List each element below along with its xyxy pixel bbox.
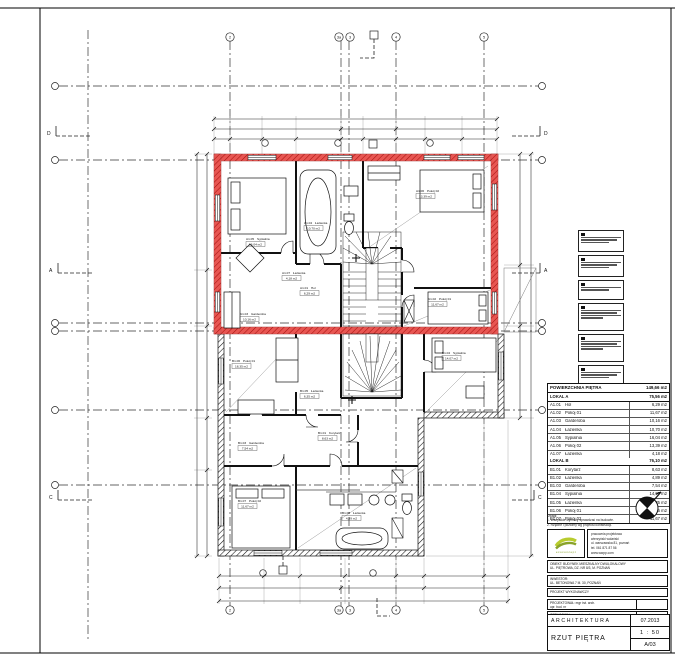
svg-text:Sypialnia: Sypialnia bbox=[257, 237, 270, 241]
company-block: ecoconcept pracownia projektowa wierzyńs… bbox=[547, 529, 668, 558]
wardrobe-top-right bbox=[368, 166, 400, 180]
svg-text:A1.05: A1.05 bbox=[246, 237, 254, 241]
svg-text:A1.02: A1.02 bbox=[428, 297, 436, 301]
legend-stack bbox=[578, 230, 624, 392]
titleblock-bottom: ARCHITEKTURA 07.2013 RZUT PIĘTRA 1 : 50 … bbox=[547, 614, 670, 651]
sink-upper bbox=[344, 186, 358, 196]
info-row-designer: PROJEKTOWAŁ: mgr inż. arch. upr. bud. nr bbox=[547, 599, 668, 610]
svg-text:B1.03: B1.03 bbox=[238, 441, 246, 445]
sink-lower-2 bbox=[348, 494, 362, 505]
lokal-a-rows: A1.01 Hol 6,29 m2 A1.02 Pokój 01 11,67 m… bbox=[548, 402, 669, 458]
svg-text:18,35 m2: 18,35 m2 bbox=[235, 365, 248, 369]
table-total: 149,66 m2 bbox=[646, 386, 667, 390]
info-row-object: OBIEKT: BUDYNEK MIESZKALNY DWULOKALOWY U… bbox=[547, 560, 668, 573]
bathtub-lower bbox=[336, 528, 388, 549]
svg-text:13,39 m2: 13,39 m2 bbox=[419, 195, 432, 199]
svg-text:4,18 m2: 4,18 m2 bbox=[286, 277, 297, 281]
svg-text:Pokój 02: Pokój 02 bbox=[249, 499, 261, 503]
logo-icon bbox=[553, 534, 579, 550]
table-row: A1.02 Pokój 01 11,67 m2 bbox=[548, 410, 669, 418]
svg-text:7,54 m2: 7,54 m2 bbox=[242, 447, 253, 451]
room-label: A1.05Sypialnia 16,04 m2 bbox=[246, 237, 270, 247]
legend-box bbox=[578, 280, 624, 300]
discipline-label: ARCHITEKTURA bbox=[548, 615, 630, 626]
closet-a bbox=[224, 292, 240, 328]
svg-text:Łazienka: Łazienka bbox=[315, 221, 328, 225]
svg-text:B1.06: B1.06 bbox=[232, 359, 240, 363]
svg-text:A1.07: A1.07 bbox=[282, 271, 290, 275]
sink-lower-4 bbox=[385, 495, 395, 505]
svg-text:5: 5 bbox=[483, 36, 485, 40]
svg-text:16,04 m2: 16,04 m2 bbox=[249, 243, 262, 247]
stairs-upper bbox=[343, 232, 401, 326]
svg-text:D: D bbox=[47, 131, 51, 137]
svg-text:B1.05: B1.05 bbox=[300, 389, 308, 393]
signature-cell bbox=[636, 600, 667, 609]
legend-swatch bbox=[581, 368, 585, 372]
bathtub-upper bbox=[300, 170, 336, 254]
interior-walls-light bbox=[224, 296, 360, 490]
svg-text:A1.03: A1.03 bbox=[240, 312, 248, 316]
legend-box bbox=[578, 334, 624, 362]
svg-text:Hol: Hol bbox=[311, 286, 316, 290]
svg-text:14,07 m2: 14,07 m2 bbox=[445, 357, 458, 361]
north-arrow-icon bbox=[626, 486, 668, 528]
svg-text:B1.04: B1.04 bbox=[442, 351, 450, 355]
table-row: A1.05 Sypialnia 16,04 m2 bbox=[548, 434, 669, 442]
svg-text:Garderoba: Garderoba bbox=[251, 312, 266, 316]
legend-swatch bbox=[581, 306, 585, 310]
drawing-title: RZUT PIĘTRA bbox=[548, 627, 630, 650]
legend-box bbox=[578, 255, 624, 277]
sink-lower-1 bbox=[330, 494, 344, 505]
svg-text:11,67 m2: 11,67 m2 bbox=[241, 505, 254, 509]
svg-text:11,67 m2: 11,67 m2 bbox=[431, 303, 444, 307]
svg-text:A: A bbox=[544, 268, 548, 274]
room-label: A1.01Hol 6,29 m2 bbox=[300, 286, 319, 296]
table-row: A1.01 Hol 6,29 m2 bbox=[548, 402, 669, 410]
info-row-investor: INWESTOR: UL. BETONOWA 7 M. 30, POZNAŃ bbox=[547, 575, 668, 587]
room-label: A1.03Garderoba 10,16 m2 bbox=[240, 312, 266, 322]
scale-value: 1 : 50 bbox=[631, 627, 669, 639]
room-label: B1.05Łazienka 6,35 m2 bbox=[300, 389, 324, 399]
svg-text:A: A bbox=[49, 268, 53, 274]
toilet-lower bbox=[402, 494, 412, 515]
svg-text:3: 3 bbox=[349, 609, 351, 613]
svg-text:5: 5 bbox=[483, 609, 485, 613]
svg-text:A1.04: A1.04 bbox=[304, 221, 312, 225]
room-label: B1.01Korytarz 8,63 m2 bbox=[318, 431, 341, 441]
svg-text:Pokój 01: Pokój 01 bbox=[439, 297, 451, 301]
svg-text:Pokój 01: Pokój 01 bbox=[243, 359, 255, 363]
svg-text:C: C bbox=[538, 495, 542, 501]
svg-text:D: D bbox=[544, 131, 548, 137]
svg-text:4: 4 bbox=[395, 609, 397, 613]
sink-lower-3 bbox=[369, 495, 379, 505]
table-row: A1.04 Łazienka 10,70 m2 bbox=[548, 426, 669, 434]
drawing-number: A/03 bbox=[631, 639, 669, 650]
svg-text:Korytarz: Korytarz bbox=[329, 431, 341, 435]
bed-wing bbox=[432, 338, 496, 372]
svg-text:3: 3 bbox=[349, 36, 351, 40]
legend-swatch bbox=[581, 233, 585, 237]
stairs-lower bbox=[343, 334, 401, 396]
room-label: A1.07Łazienka 4,18 m2 bbox=[282, 271, 306, 281]
svg-text:Pokój 02: Pokój 02 bbox=[427, 189, 439, 193]
legend-swatch bbox=[581, 283, 585, 287]
svg-text:6,29 m2: 6,29 m2 bbox=[304, 292, 315, 296]
wardrobe-b bbox=[276, 338, 298, 382]
area-table-header: POWIERZCHNIA PIĘTRA 149,66 m2 bbox=[548, 384, 669, 393]
legend-box bbox=[578, 303, 624, 331]
room-label: B1.02Łazienka 4,89 m2 bbox=[342, 511, 366, 521]
svg-text:Garderoba: Garderoba bbox=[249, 441, 264, 445]
room-label: B1.03Garderoba 7,54 m2 bbox=[238, 441, 264, 451]
svg-text:8,63 m2: 8,63 m2 bbox=[322, 437, 333, 441]
table-row: B1.01 Korytarz 8,63 m2 bbox=[548, 466, 669, 474]
table-title: POWIERZCHNIA PIĘTRA bbox=[550, 386, 602, 390]
svg-text:A1.06: A1.06 bbox=[416, 189, 424, 193]
svg-text:B1.07: B1.07 bbox=[238, 499, 246, 503]
grid-lines bbox=[59, 30, 540, 640]
drawing-sheet: { "drawing": { "red_color": "#e0140f", "… bbox=[0, 0, 675, 670]
legend-swatch bbox=[581, 337, 585, 341]
rug bbox=[236, 244, 264, 272]
dresser-b bbox=[238, 400, 274, 414]
info-row-stage: PROJEKT WYKONAWCZY bbox=[547, 588, 668, 597]
svg-text:Łazienka: Łazienka bbox=[293, 271, 306, 275]
svg-text:B1.01: B1.01 bbox=[318, 431, 326, 435]
lokal-b-row: LOKAL B 76,10 m2 bbox=[548, 458, 669, 467]
svg-text:2: 2 bbox=[229, 36, 231, 40]
svg-text:10,70 m2: 10,70 m2 bbox=[307, 227, 320, 231]
svg-text:A1.01: A1.01 bbox=[300, 286, 308, 290]
table-row: A1.07 Łazienka 4,18 m2 bbox=[548, 451, 669, 458]
svg-text:6,35 m2: 6,35 m2 bbox=[304, 395, 315, 399]
bed-bottom-left bbox=[232, 486, 290, 548]
svg-text:4: 4 bbox=[395, 36, 397, 40]
svg-text:C: C bbox=[49, 495, 53, 501]
toilet-upper bbox=[344, 214, 354, 235]
company-logo: ecoconcept bbox=[547, 529, 585, 558]
legend-swatch bbox=[581, 258, 585, 262]
svg-text:10,16 m2: 10,16 m2 bbox=[243, 318, 256, 322]
legend-box bbox=[578, 230, 624, 252]
bed-upper-left bbox=[228, 178, 286, 234]
svg-text:2: 2 bbox=[229, 609, 231, 613]
table-row: A1.06 Pokój 02 13,39 m2 bbox=[548, 442, 669, 450]
svg-text:Łazienka: Łazienka bbox=[353, 511, 366, 515]
svg-text:Łazienka: Łazienka bbox=[311, 389, 324, 393]
svg-text:Sypialnia: Sypialnia bbox=[453, 351, 466, 355]
lokal-a-row: LOKAL A 75,56 m2 bbox=[548, 393, 669, 402]
date-value: 07.2013 bbox=[630, 615, 669, 626]
svg-text:B1.02: B1.02 bbox=[342, 511, 350, 515]
table-wing bbox=[466, 386, 484, 398]
logo-text: ecoconcept bbox=[556, 550, 576, 554]
table-row: B1.02 Łazienka 4,89 m2 bbox=[548, 475, 669, 483]
table-row: A1.03 Garderoba 10,16 m2 bbox=[548, 418, 669, 426]
svg-text:4,89 m2: 4,89 m2 bbox=[346, 517, 357, 521]
room-label: B1.06Pokój 01 18,35 m2 bbox=[232, 359, 255, 369]
company-info: pracownia projektowa wierzyński wolański… bbox=[587, 529, 668, 558]
bed-mid-right bbox=[428, 292, 488, 324]
